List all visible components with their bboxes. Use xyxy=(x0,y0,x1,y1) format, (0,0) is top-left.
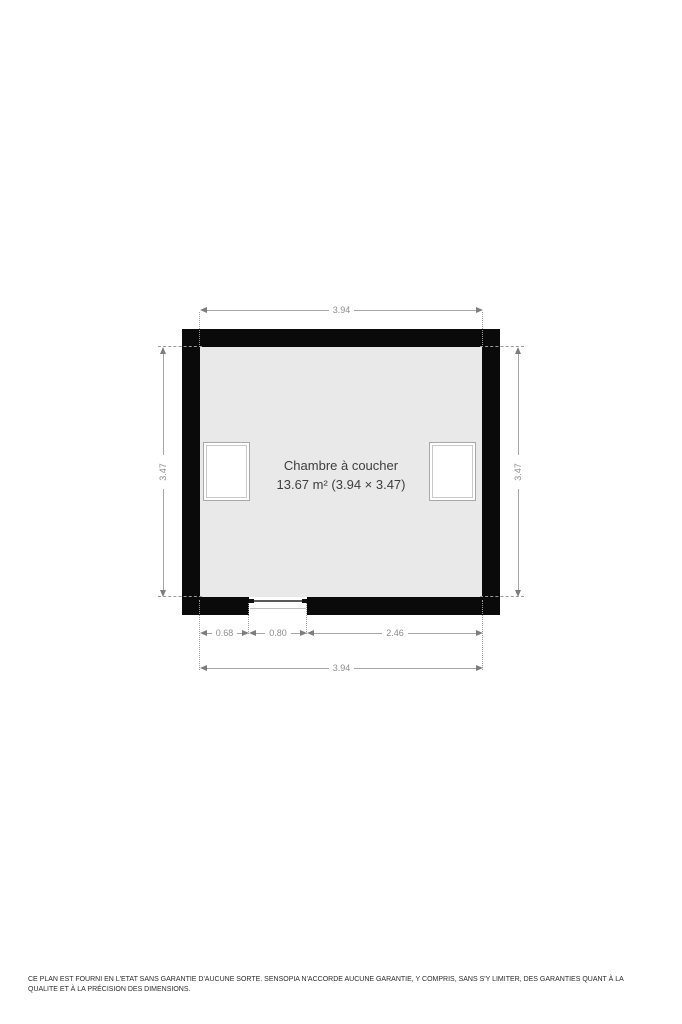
dimension-bottom-segment-1: 0.68 xyxy=(200,626,249,640)
arrow-icon xyxy=(249,630,256,636)
dimension-bottom-total: 3.94 xyxy=(200,661,483,675)
dimension-bottom-segment-2: 0.80 xyxy=(249,626,307,640)
dimension-bottom-segment-2-label: 0.80 xyxy=(265,626,291,640)
dimension-bottom-segment-1-label: 0.68 xyxy=(212,626,238,640)
window-sill-line xyxy=(250,608,306,609)
extension-line xyxy=(482,600,483,670)
extension-line xyxy=(480,346,524,347)
extension-line xyxy=(480,596,524,597)
floorplan-canvas: Chambre à coucher 13.67 m² (3.94 × 3.47)… xyxy=(0,0,682,1024)
room-label: Chambre à coucher 13.67 m² (3.94 × 3.47) xyxy=(200,456,482,494)
extension-line xyxy=(306,603,307,634)
dimension-right-height: 3.47 xyxy=(511,347,525,597)
dimension-bottom-total-label: 3.94 xyxy=(329,661,355,675)
arrow-icon xyxy=(160,347,166,354)
room-area: 13.67 m² (3.94 × 3.47) xyxy=(200,475,482,494)
dimension-bottom-segment-3: 2.46 xyxy=(307,626,483,640)
room-name: Chambre à coucher xyxy=(200,456,482,475)
arrow-icon xyxy=(307,630,314,636)
extension-line xyxy=(199,600,200,670)
extension-line xyxy=(158,596,202,597)
window-frame-line xyxy=(250,600,306,602)
extension-line xyxy=(158,346,202,347)
dimension-bottom-segment-3-label: 2.46 xyxy=(382,626,408,640)
dimension-top-width: 3.94 xyxy=(200,303,483,317)
dimension-right-height-label: 3.47 xyxy=(513,463,523,481)
arrow-icon xyxy=(200,307,207,313)
arrow-icon xyxy=(515,347,521,354)
extension-line xyxy=(248,603,249,634)
disclaimer-text: CE PLAN EST FOURNI EN L'ETAT SANS GARANT… xyxy=(28,975,643,995)
arrow-icon xyxy=(200,665,207,671)
dimension-top-width-label: 3.94 xyxy=(329,303,355,317)
window-opening-bottom xyxy=(249,597,307,615)
dimension-left-height: 3.47 xyxy=(156,347,170,597)
dimension-left-height-label: 3.47 xyxy=(158,463,168,481)
window-frame-cap-left xyxy=(249,599,254,603)
arrow-icon xyxy=(200,630,207,636)
extension-line xyxy=(199,312,200,347)
extension-line xyxy=(482,312,483,347)
